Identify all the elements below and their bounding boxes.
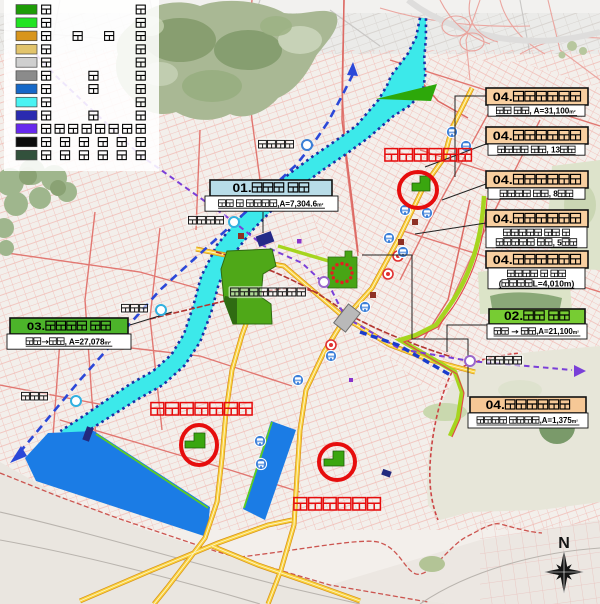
svg-text:(: ( (499, 279, 502, 288)
svg-text:m²: m² (572, 419, 578, 425)
svg-text:,A=7,304.6: ,A=7,304.6 (277, 199, 317, 208)
svg-text:m²: m² (105, 340, 112, 346)
svg-text:04.: 04. (493, 173, 513, 187)
svg-text:m²: m² (569, 110, 576, 116)
svg-text:, 8: , 8 (549, 190, 559, 199)
svg-text:,A=1,375: ,A=1,375 (540, 416, 573, 425)
svg-text:04.: 04. (493, 253, 513, 267)
svg-text:01.: 01. (233, 183, 252, 195)
svg-text:02.: 02. (504, 311, 523, 323)
svg-text:04.: 04. (493, 90, 513, 104)
svg-text:04.: 04. (493, 129, 513, 143)
svg-text:L=4,010m): L=4,010m) (533, 279, 575, 288)
svg-text:03.: 03. (27, 321, 45, 333)
svg-text:m²: m² (317, 202, 324, 208)
svg-text:, A=31,100: , A=31,100 (529, 107, 569, 116)
svg-text:04.: 04. (486, 400, 505, 412)
svg-text:, 5: , 5 (553, 238, 563, 247)
svg-text:,A=21,100: ,A=21,100 (536, 327, 573, 336)
svg-text:, A=27,078: , A=27,078 (65, 337, 105, 346)
svg-text:m²: m² (573, 330, 579, 336)
svg-text:N: N (558, 535, 570, 552)
svg-text:04.: 04. (493, 212, 513, 226)
svg-text:, 13: , 13 (546, 146, 560, 155)
